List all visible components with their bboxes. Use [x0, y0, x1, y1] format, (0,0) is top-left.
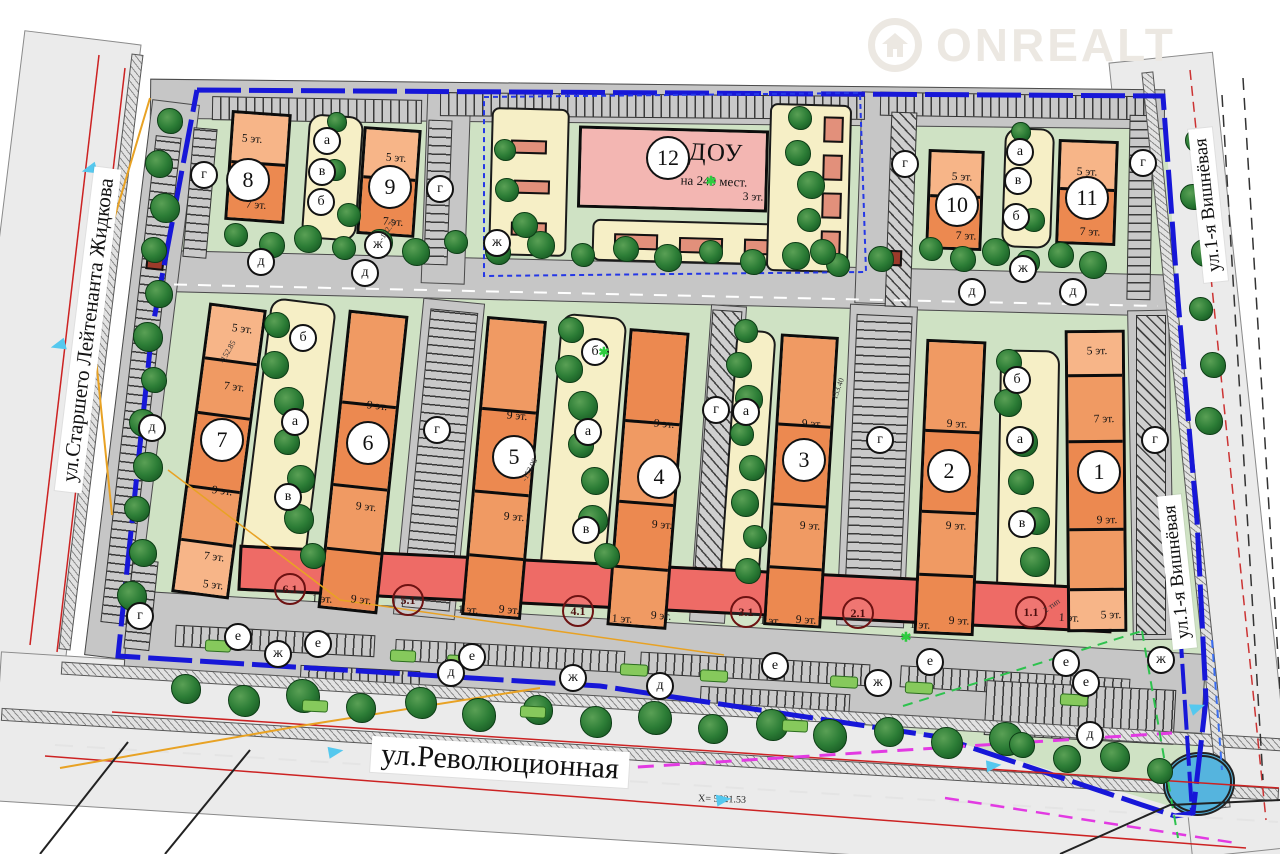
marker-а: а: [281, 408, 309, 436]
tree: [735, 558, 761, 584]
tree: [150, 193, 180, 223]
building-4-section: [614, 500, 673, 568]
site-plan-canvas: 1234567891011126.15.14.13.12.11.1ггггггг…: [0, 0, 1280, 854]
marker-г: г: [702, 396, 730, 424]
marker-а: а: [574, 418, 602, 446]
marker-в: в: [308, 158, 336, 186]
map-label: 9 эт.: [503, 511, 525, 524]
tree: [1195, 407, 1223, 435]
marker-а: а: [313, 127, 341, 155]
tree: [571, 243, 595, 267]
shrub: [620, 663, 649, 676]
tree: [124, 496, 150, 522]
marker-ж: ж: [1009, 255, 1037, 283]
building-6-section: [327, 483, 387, 553]
shrub: [302, 699, 329, 712]
tree: [495, 178, 519, 202]
tree: [734, 319, 758, 343]
marker-б: б: [307, 188, 335, 216]
tree: [580, 706, 612, 738]
map-label: 5 эт.: [231, 323, 253, 337]
tree: [1100, 742, 1130, 772]
marker-г: г: [190, 161, 218, 189]
tree: [797, 171, 825, 199]
marker-е: е: [761, 652, 789, 680]
tree: [346, 693, 376, 723]
tree: [581, 467, 609, 495]
tree: [613, 236, 639, 262]
map-label: 9 эт.: [650, 611, 671, 624]
map-label: 7 эт.: [1080, 227, 1101, 239]
tree: [982, 238, 1010, 266]
map-label: 9 эт.: [350, 594, 372, 608]
tree: [698, 714, 728, 744]
map-label: 9 эт.: [506, 410, 528, 423]
marker-б: б: [1002, 203, 1030, 231]
marker-ж: ж: [264, 640, 292, 668]
tree: [810, 239, 836, 265]
podium-number-2.1: 2.1: [842, 597, 874, 629]
parking-lot: [880, 92, 1148, 121]
tree: [1189, 297, 1213, 321]
tree: [405, 687, 437, 719]
shrub: [782, 719, 809, 732]
tree: [145, 150, 173, 178]
parking-lot: [1136, 315, 1166, 635]
map-label: 9 эт.: [211, 485, 233, 499]
map-label: 9 эт.: [355, 501, 377, 515]
tree: [868, 246, 894, 272]
tree: [171, 674, 201, 704]
marker-ж: ж: [559, 664, 587, 692]
map-label: 9 эт.: [799, 521, 820, 534]
tree: [1147, 758, 1173, 784]
map-label: 5 эт.: [202, 579, 224, 593]
tree: [699, 240, 723, 264]
tree: [568, 391, 598, 421]
tree: [133, 452, 163, 482]
map-label: ✱: [901, 631, 912, 644]
marker-а: а: [1006, 426, 1034, 454]
map-label: 5 эт.: [1077, 167, 1098, 179]
map-label: 9 эт.: [801, 419, 822, 432]
tree: [931, 727, 963, 759]
tree: [1079, 251, 1107, 279]
map-label: 9 эт.: [1097, 515, 1118, 527]
line-corner-road-3: [1060, 800, 1280, 854]
tree: [558, 317, 584, 343]
building-5-section: [482, 319, 543, 412]
map-label: 1 эт.: [457, 605, 478, 618]
map-label: 9 эт.: [795, 615, 816, 628]
play-structure: [822, 154, 843, 181]
tree: [874, 717, 904, 747]
building-4-section: [626, 331, 687, 423]
map-label: 7 эт.: [245, 200, 266, 213]
tree: [332, 236, 356, 260]
marker-г: г: [1141, 426, 1169, 454]
tree: [726, 352, 752, 378]
building-number-1: 1: [1077, 450, 1121, 494]
play-structure: [823, 116, 844, 143]
plan-layer: 1234567891011126.15.14.13.12.11.1ггггггг…: [0, 0, 1280, 854]
building-1-section: [1069, 528, 1124, 588]
map-label: 9 эт.: [653, 419, 674, 432]
house-logo-icon: [868, 18, 922, 72]
marker-д: д: [958, 278, 986, 306]
house-icon: [880, 31, 910, 59]
flow-arrow: [986, 759, 1002, 773]
shrub: [830, 675, 859, 688]
tree: [1020, 547, 1050, 577]
tree: [145, 280, 173, 308]
tree: [133, 322, 163, 352]
marker-д: д: [646, 672, 674, 700]
tree: [402, 238, 430, 266]
marker-е: е: [224, 623, 252, 651]
marker-г: г: [423, 416, 451, 444]
onrealt-logo-text: ONREALT: [936, 18, 1176, 72]
marker-д: д: [138, 414, 166, 442]
line-right-black-dash-2: [1243, 78, 1280, 690]
tree: [228, 685, 260, 717]
map-label: 9 эт.: [366, 400, 388, 414]
building-number-4: 4: [637, 455, 681, 499]
tree: [512, 212, 538, 238]
tree: [594, 543, 620, 569]
tree: [224, 223, 248, 247]
line-corner-road-1: [40, 742, 128, 854]
tree: [740, 249, 766, 275]
tree: [638, 701, 672, 735]
map-label: 5 эт.: [385, 153, 406, 166]
building-number-9: 9: [368, 165, 412, 209]
podium-number-4.1: 4.1: [562, 595, 594, 627]
tree: [264, 312, 290, 338]
tree: [788, 106, 812, 130]
map-label: 5 эт.: [952, 172, 973, 184]
tree: [129, 539, 157, 567]
building-number-8: 8: [226, 158, 270, 202]
tree: [1200, 352, 1226, 378]
tree: [782, 242, 810, 270]
marker-ж: ж: [1147, 646, 1175, 674]
marker-а: а: [1006, 138, 1034, 166]
tree: [294, 225, 322, 253]
map-label: 7 эт.: [203, 551, 225, 565]
marker-г: г: [426, 175, 454, 203]
map-label: 1 эт.: [1058, 613, 1079, 626]
flow-arrow: [716, 793, 733, 807]
flow-arrow: [328, 744, 345, 758]
marker-е: е: [916, 648, 944, 676]
marker-е: е: [1072, 669, 1100, 697]
map-label: 7 эт.: [956, 231, 977, 243]
map-label: 9 эт.: [651, 520, 672, 533]
tree: [157, 108, 183, 134]
marker-е: е: [458, 643, 486, 671]
map-label: ДОУ: [688, 140, 743, 167]
onrealt-watermark: ONREALT: [868, 18, 1176, 72]
tree: [141, 237, 167, 263]
map-label: 9 эт.: [946, 521, 967, 533]
line-right-black-dash-1: [1222, 95, 1263, 780]
tree: [743, 525, 767, 549]
marker-д: д: [1059, 278, 1087, 306]
tree: [739, 455, 765, 481]
tree: [813, 719, 847, 753]
marker-г: г: [1129, 149, 1157, 177]
tree: [141, 367, 167, 393]
building-number-6: 6: [346, 421, 390, 465]
shrub: [520, 705, 547, 718]
podium-number-1.1: 1.1: [1015, 596, 1047, 628]
map-label: ✱: [706, 175, 717, 188]
map-label: ✱: [599, 346, 610, 359]
map-label: 9 эт.: [947, 419, 968, 431]
play-structure: [821, 192, 842, 219]
marker-в: в: [1004, 167, 1032, 195]
marker-г: г: [126, 602, 154, 630]
marker-а: а: [732, 398, 760, 426]
tree: [785, 140, 811, 166]
marker-г: г: [866, 426, 894, 454]
marker-б: б: [1003, 366, 1031, 394]
map-label: 7 эт.: [1094, 414, 1115, 426]
tree: [731, 489, 759, 517]
map-label: 5 эт.: [1087, 346, 1108, 358]
shrub: [905, 681, 934, 694]
podium-number-3.1: 3.1: [730, 596, 762, 628]
play-structure: [511, 140, 547, 155]
map-label: 9 эт.: [949, 616, 970, 628]
tree: [261, 351, 289, 379]
flow-arrow: [49, 338, 67, 353]
map-label: 1 эт.: [759, 616, 780, 629]
map-label: 7 эт.: [223, 381, 245, 395]
marker-в: в: [274, 483, 302, 511]
tree: [919, 237, 943, 261]
marker-в: в: [572, 516, 600, 544]
marker-е: е: [304, 630, 332, 658]
marker-б: б: [289, 324, 317, 352]
map-label: 9 эт.: [498, 604, 520, 617]
tree: [444, 230, 468, 254]
tree: [1053, 745, 1081, 773]
line-corner-road-2: [165, 750, 250, 854]
map-label: 1 эт.: [611, 614, 632, 627]
map-label: 5 эт.: [241, 134, 262, 147]
marker-ж: ж: [483, 229, 511, 257]
marker-д: д: [351, 259, 379, 287]
marker-в: в: [1008, 510, 1036, 538]
building-number-10: 10: [935, 183, 979, 227]
building-3-section: [779, 337, 836, 426]
podium-number-6.1: 6.1: [274, 573, 306, 605]
tree: [462, 698, 496, 732]
marker-д: д: [1076, 721, 1104, 749]
tree: [494, 139, 516, 161]
tree: [1048, 242, 1074, 268]
building-number-2: 2: [927, 449, 971, 493]
tree: [1008, 469, 1034, 495]
building-number-7: 7: [200, 418, 244, 462]
marker-д: д: [247, 248, 275, 276]
play-structure: [514, 180, 550, 195]
tree: [797, 208, 821, 232]
tree: [950, 246, 976, 272]
marker-ж: ж: [864, 669, 892, 697]
shrub: [700, 669, 729, 682]
podium-number-5.1: 5.1: [392, 584, 424, 616]
building-3-section: [770, 502, 826, 568]
tree: [1009, 732, 1035, 758]
tree: [300, 543, 326, 569]
map-label: 3 эт.: [743, 192, 764, 204]
marker-г: г: [891, 150, 919, 178]
building-number-3: 3: [782, 438, 826, 482]
map-label: 1 эт.: [909, 620, 930, 633]
tree: [555, 355, 583, 383]
tree: [337, 203, 361, 227]
shrub: [390, 649, 417, 662]
building-6-section: [342, 313, 405, 406]
building-1-section: [1068, 374, 1123, 440]
tree: [654, 244, 682, 272]
map-label: 5 эт.: [1101, 610, 1122, 622]
building-number-11: 11: [1065, 176, 1109, 220]
map-label: 1 эт.: [311, 594, 332, 607]
